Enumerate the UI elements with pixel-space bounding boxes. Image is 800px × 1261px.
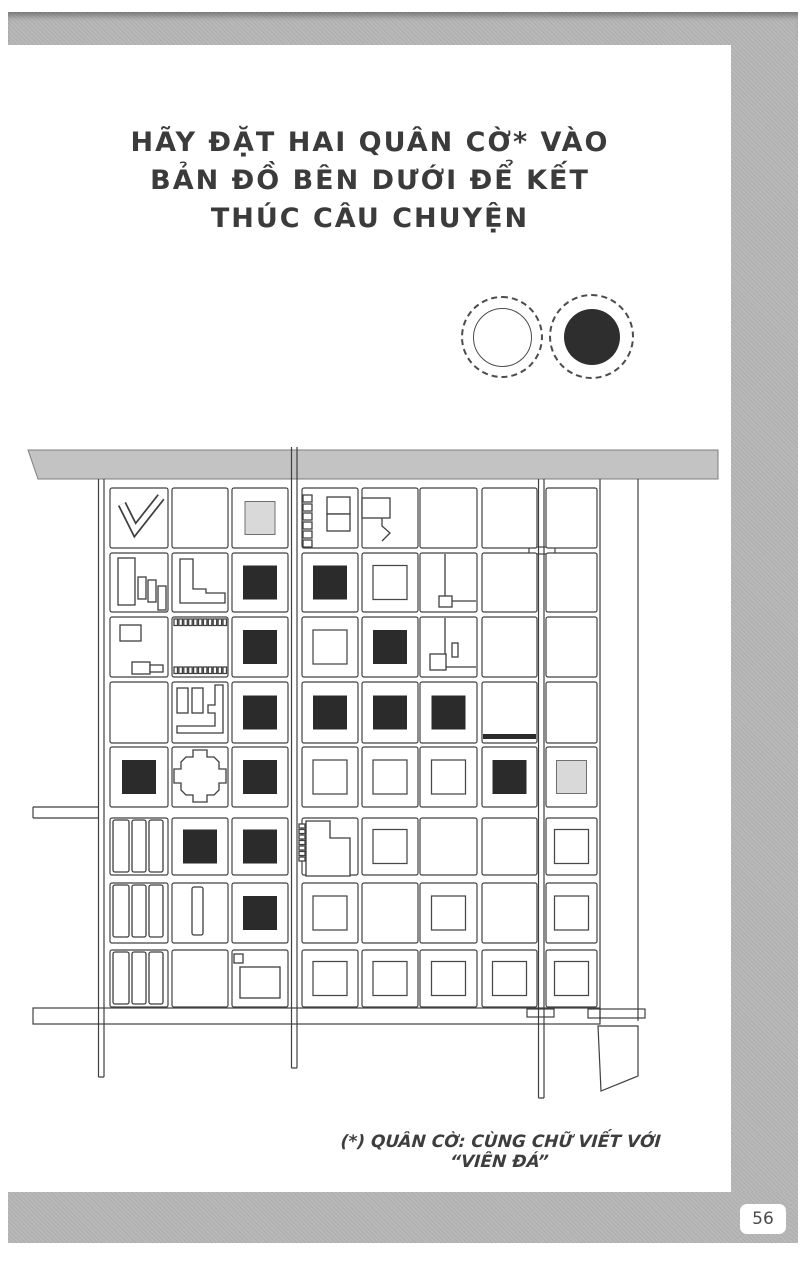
outlined-square xyxy=(373,962,407,996)
dark-square xyxy=(122,760,156,794)
left-vertical-road xyxy=(99,479,105,1077)
dark-square xyxy=(373,696,407,730)
outlined-square xyxy=(313,962,347,996)
city-block-r8c2 xyxy=(172,950,228,1007)
city-block-r4c7 xyxy=(482,682,537,743)
building-jwall xyxy=(177,685,223,733)
outlined-square xyxy=(432,962,466,996)
outlined-square xyxy=(555,962,589,996)
dark-square xyxy=(313,566,347,600)
right-road-band xyxy=(600,479,638,1021)
city-block-r6c7 xyxy=(482,818,537,875)
road-flap xyxy=(598,1026,638,1091)
title-line-1: HÃY ĐẶT HAI QUÂN CỜ* VÀO xyxy=(30,124,710,162)
black-stone-icon xyxy=(549,294,634,379)
dark-square xyxy=(243,896,277,930)
footnote: (*) QUÂN CỜ: CÙNG CHỮ VIẾT VỚI “VIÊN ĐÁ” xyxy=(309,1132,692,1172)
city-block-r1c2 xyxy=(172,488,228,548)
city-block-r3c6 xyxy=(420,617,477,677)
vertical-road-1 xyxy=(292,447,298,1068)
city-map xyxy=(0,440,800,1110)
city-block-r1c8 xyxy=(546,488,597,548)
white-stone-core xyxy=(473,308,532,367)
page-title: HÃY ĐẶT HAI QUÂN CỜ* VÀO BẢN ĐỒ BÊN DƯỚI… xyxy=(30,124,710,238)
city-block-r1c7 xyxy=(482,488,537,548)
city-block-r3c7 xyxy=(482,617,537,677)
outlined-square xyxy=(432,760,466,794)
city-block-r4c8 xyxy=(546,682,597,743)
building-bar1 xyxy=(192,887,203,935)
city-block-r6c6 xyxy=(420,818,477,875)
outlined-square xyxy=(373,830,407,864)
dark-square xyxy=(313,696,347,730)
outlined-square xyxy=(313,896,347,930)
city-block-r4c1 xyxy=(110,682,168,743)
dark-square xyxy=(373,630,407,664)
city-block-r2c7 xyxy=(482,553,537,612)
dark-square xyxy=(243,566,277,600)
outlined-square xyxy=(313,630,347,664)
top-road xyxy=(28,450,718,479)
title-line-2: BẢN ĐỒ BÊN DƯỚI ĐỂ KẾT xyxy=(30,162,710,200)
page-border-top xyxy=(8,12,798,45)
outlined-square xyxy=(555,896,589,930)
page-number-badge: 56 xyxy=(740,1204,786,1234)
vertical-road-2 xyxy=(539,479,545,1098)
title-line-3: THÚC CÂU CHUYỆN xyxy=(30,200,710,238)
outlined-square xyxy=(432,896,466,930)
building-hbar xyxy=(483,734,536,739)
city-block-r7c5 xyxy=(362,883,418,943)
black-stone-core xyxy=(564,309,620,365)
outlined-square xyxy=(373,760,407,794)
dark-square xyxy=(243,830,277,864)
scanned-book-page: HÃY ĐẶT HAI QUÂN CỜ* VÀO BẢN ĐỒ BÊN DƯỚI… xyxy=(0,0,800,1261)
shaded-square xyxy=(245,502,275,535)
outlined-square xyxy=(313,760,347,794)
shaded-square xyxy=(557,761,587,794)
city-blocks xyxy=(110,488,597,1007)
outlined-square xyxy=(373,566,407,600)
bottom-road xyxy=(33,1008,600,1024)
building-bars3 xyxy=(113,885,163,937)
city-block-r2c8 xyxy=(546,553,597,612)
dark-square xyxy=(243,760,277,794)
dark-square xyxy=(243,696,277,730)
dark-square xyxy=(493,760,527,794)
dark-square xyxy=(432,696,466,730)
city-block-r3c8 xyxy=(546,617,597,677)
city-block-r7c7 xyxy=(482,883,537,943)
dark-square xyxy=(183,830,217,864)
building-bars3 xyxy=(113,820,163,872)
city-block-r1c6 xyxy=(420,488,477,548)
page-border-bottom xyxy=(8,1192,790,1243)
left-road-stub xyxy=(33,807,98,818)
page-number: 56 xyxy=(752,1209,774,1229)
building-bars3 xyxy=(113,952,163,1004)
outlined-square xyxy=(555,830,589,864)
white-stone-icon xyxy=(461,296,543,378)
outlined-square xyxy=(493,962,527,996)
dark-square xyxy=(243,630,277,664)
